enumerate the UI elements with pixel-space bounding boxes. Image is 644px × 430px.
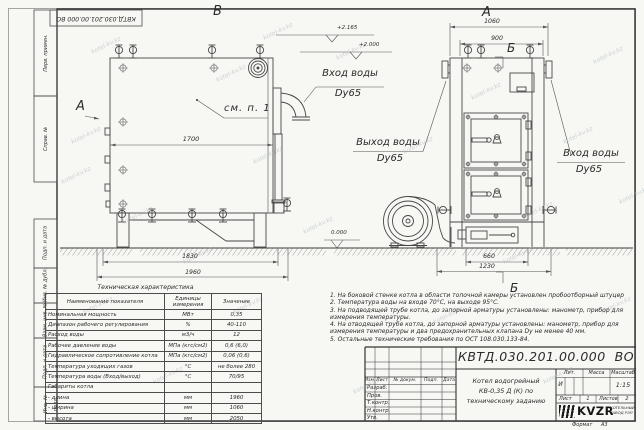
note-3: 3. На подводящей трубе котла, до запорно… [330, 307, 638, 322]
tb-sheet-label: Лист [559, 397, 572, 402]
frame-label-podp-data-1: Подп. и дата [41, 219, 51, 268]
tb-sheets-value: 2 [625, 397, 628, 402]
spec-row: Рабочее давление водыМПа (кгс/см2)0,6 (6… [46, 341, 262, 351]
label-water-inlet-side-2: Dy65 [335, 89, 361, 99]
label-water-inlet-front-1: Вход воды [563, 149, 619, 159]
upper-door [464, 113, 531, 168]
frame-label-perv-primen: Перв. примен. [41, 10, 51, 96]
spec-row: Температура воды (Вход/выход)°С70/95 [46, 372, 262, 382]
frame-label-sprav-no: Справ. № [41, 96, 51, 182]
spec-row: - высотамм2050 [46, 413, 262, 423]
view-label-b: В [213, 5, 222, 18]
section-label-b-top: Б [507, 42, 515, 54]
tb-col-list: Лист [376, 379, 388, 384]
level-mark-zero: 0.000 [331, 231, 347, 237]
tb-lit-label: Лит. [564, 371, 576, 376]
spec-header-name: Наименование показателя [46, 294, 165, 310]
tb-row-tkontr: Т.контр. [367, 401, 389, 406]
burner-box [458, 227, 518, 243]
boiler-side-view [105, 45, 310, 247]
water-inlet-elbow [272, 88, 310, 213]
spec-row: - ширинамм1060 [46, 403, 262, 413]
tb-mass-label: Масса [589, 371, 605, 376]
spec-row: Расход водым3/ч12 [46, 330, 262, 340]
doc-title-line-2: КВ-0,35 Д (К) по [479, 388, 533, 394]
note-2: 2. Температура воды на входе 70°С, на вы… [330, 299, 638, 306]
format-value: А3 [601, 423, 608, 428]
note-4: 4. На отводящей трубе котла, до запорной… [330, 321, 638, 336]
label-water-inlet-side-1: Вход воды [322, 69, 378, 79]
spec-table: Наименование показателя Единицы измерени… [45, 293, 262, 424]
level-mark-2165: +2.165 [337, 26, 357, 32]
kvzr-logo-icon [559, 405, 575, 418]
note-1: 1. На боковой стенке котла в области топ… [330, 292, 638, 299]
ground-line [60, 248, 633, 256]
label-water-inlet-front-2: Dy65 [576, 165, 602, 175]
callout-see-item-1: см. п. 1 [224, 104, 271, 114]
dim-900: 900 [491, 36, 503, 42]
view-arrow-label-a: А [76, 100, 85, 113]
technical-notes: 1. На боковой стенке котла в области топ… [330, 292, 638, 343]
tb-scale-label: Масштаб [611, 371, 635, 376]
spec-row: Диапазон рабочего регулирования%40-110 [46, 320, 262, 330]
tb-sheet-value: 1 [586, 397, 589, 402]
top-flange-port [249, 59, 268, 78]
tb-col-data: Дата [443, 379, 455, 384]
drawing-sheet: kotel-kv.kzkotel-kv.kzkotel-kv.kzkotel-k… [0, 0, 644, 430]
tb-col-podp: Подп. [424, 379, 438, 384]
spec-row: - длинамм1960 [46, 393, 262, 403]
level-mark-2000: +2.000 [359, 43, 379, 49]
dim-1230: 1230 [479, 264, 495, 270]
tb-lit-value: И [558, 382, 563, 388]
spec-header-units: Единицы измерения [165, 294, 212, 310]
tb-row-utv: Утв. [367, 416, 378, 421]
label-water-outlet-1: Выход воды [356, 138, 420, 148]
dim-1830: 1830 [182, 254, 198, 260]
company-line-2: ЗАВОД РЭП [610, 411, 635, 416]
blower-fan [384, 197, 456, 248]
doc-title-line-3: техническому заданию [467, 398, 546, 404]
tb-row-prov: Пров. [367, 394, 382, 399]
tb-row-nkontr: Н.контр. [367, 409, 390, 414]
spec-header-value: Значение [212, 294, 262, 310]
tb-row-razrab: Разраб. [367, 386, 387, 391]
dim-1700: 1700 [183, 136, 200, 143]
spec-table-title: Техническая характеристика [45, 284, 246, 291]
spec-row: Температура уходящих газов°Сне более 280 [46, 361, 262, 371]
spec-row: Номинальная мощностьМВт0,35 [46, 310, 262, 320]
spec-row: Гидравлическое сопротивление котлаМПа (к… [46, 351, 262, 361]
tb-col-izm: Изм. [365, 379, 376, 384]
tb-sheets-label: Листов [599, 397, 618, 402]
dim-1960: 1960 [185, 270, 201, 276]
title-block-doc-number: КВТД.030.201.00.000 ВО [458, 351, 634, 364]
lower-door [464, 170, 531, 220]
dim-660: 660 [483, 254, 495, 260]
doc-title-line-1: Котел водогрейный [472, 378, 539, 384]
top-stamp-doc-number: КВТД.030.201.00.000 ВО [50, 10, 142, 26]
dim-1060: 1060 [484, 19, 500, 25]
note-5: 5. Остальные технические требования по О… [330, 336, 638, 343]
kvzr-logo-text: KVZR [577, 404, 614, 418]
format-label: Формат [572, 423, 592, 428]
label-water-outlet-2: Dy65 [377, 154, 403, 164]
company-name: КОТЕЛЬНЫЙ ЗАВОД РЭП [610, 406, 635, 415]
tb-scale-value: 1:15 [616, 382, 631, 389]
spec-row: Габариты котла [46, 382, 262, 392]
tb-col-ndokum: № докум. [394, 379, 417, 384]
